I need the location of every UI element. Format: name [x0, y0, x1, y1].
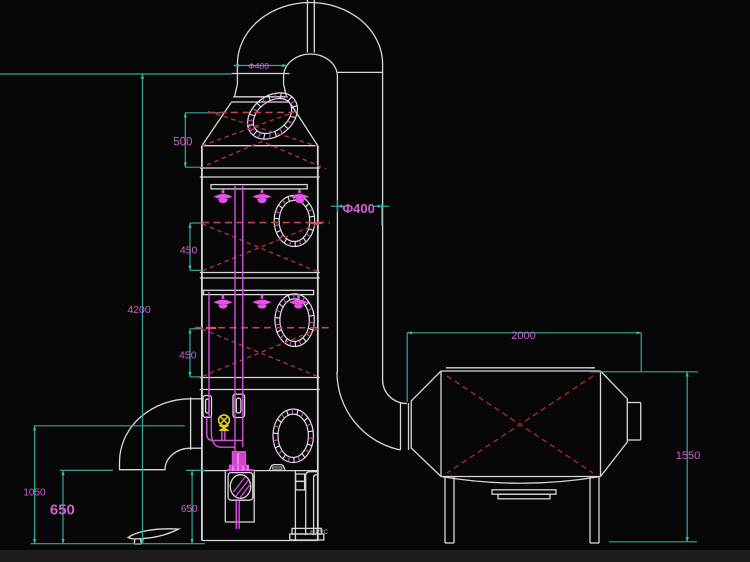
svg-text:Φ400: Φ400 [343, 201, 375, 216]
svg-text:4200: 4200 [127, 304, 151, 316]
svg-text:650: 650 [50, 502, 75, 519]
svg-text:500: 500 [173, 137, 192, 149]
svg-text:2000: 2000 [511, 330, 535, 342]
svg-text:Φ400: Φ400 [248, 61, 269, 71]
svg-text:450: 450 [179, 350, 197, 362]
svg-text:450: 450 [180, 245, 198, 257]
svg-text:▤PVC: ▤PVC [310, 530, 329, 536]
svg-text:1550: 1550 [676, 450, 700, 462]
svg-text:1050: 1050 [23, 488, 46, 499]
svg-text:650: 650 [181, 504, 198, 515]
